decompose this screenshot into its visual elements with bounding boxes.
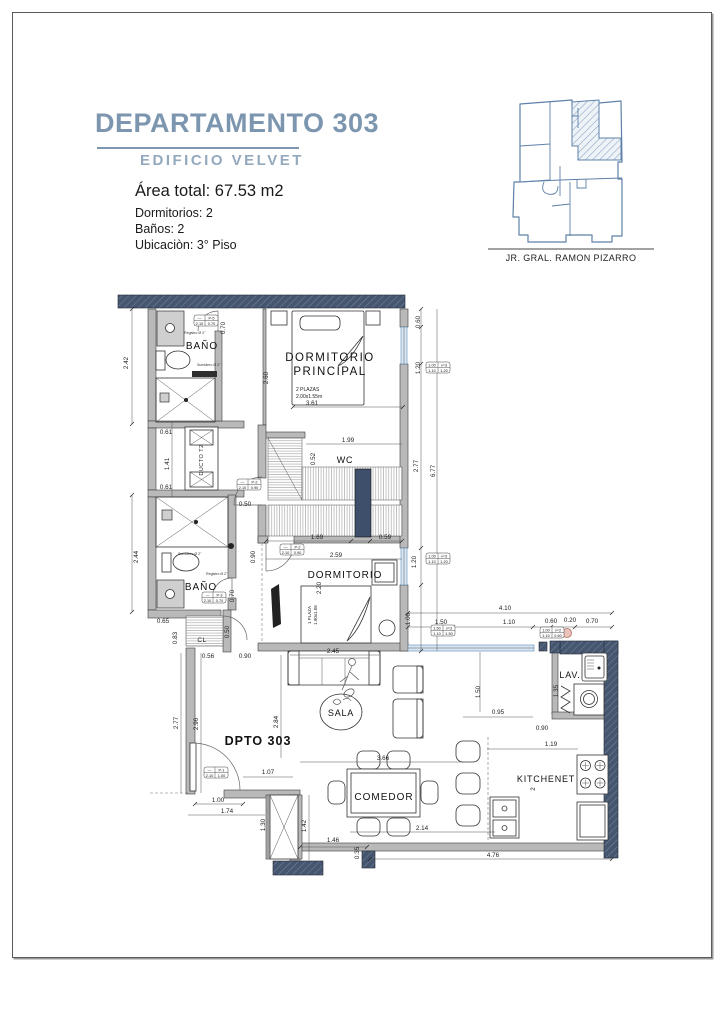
counter — [577, 802, 608, 840]
dim-label: 0.95 — [492, 709, 505, 716]
dim-label: 1.00 — [212, 797, 225, 804]
room-label-ducto: DUCTO T2 — [199, 444, 205, 475]
duct-shaft — [355, 469, 371, 537]
svg-text:1.20: 1.20 — [440, 560, 447, 564]
dim-label: 1.35 — [553, 684, 560, 697]
dim-label: 0.35 — [354, 846, 361, 859]
dim-label: 0.52 — [310, 452, 317, 465]
dim-label: 3.61 — [306, 400, 319, 407]
dim-label: 1.74 — [221, 808, 234, 815]
svg-text:P-2: P-2 — [295, 545, 301, 549]
kitchen-fixtures — [456, 653, 608, 841]
washing-machine — [574, 684, 604, 715]
dim-label: 1.99 — [342, 437, 355, 444]
fixture-note: Sumidero Ø 2" — [178, 552, 202, 556]
svg-text:2.10: 2.10 — [206, 774, 213, 778]
svg-text:2.10: 2.10 — [204, 599, 211, 603]
svg-text:0.70: 0.70 — [208, 322, 215, 326]
dim-label: 2 — [530, 787, 537, 791]
tv — [271, 584, 281, 628]
dim-label: 1.20 — [415, 361, 422, 374]
living-room-furniture — [288, 651, 423, 738]
window-spec-v3c: 1.50 v=3 1.10 1.50 — [431, 625, 455, 636]
svg-text:1.10: 1.10 — [433, 632, 440, 636]
window-spec-v3b: 1.00 v=3 1.10 1.20 — [426, 553, 450, 564]
dim-label: 1.30 — [260, 818, 267, 831]
laundry-sink — [582, 653, 607, 681]
room-label-closet: CL — [197, 637, 206, 644]
svg-text:v=2: v=2 — [555, 628, 561, 632]
svg-text:v=3: v=3 — [446, 626, 452, 630]
svg-text:1.00: 1.00 — [428, 554, 435, 558]
dim-label: 0.60 — [545, 618, 558, 625]
svg-text:1.00: 1.00 — [218, 774, 225, 778]
svg-text:1.00: 1.00 — [542, 628, 549, 632]
dim-label: 1.50 — [435, 619, 448, 626]
dim-label: 2.45 — [327, 648, 340, 655]
fixture-note: Registro Ø 2" — [206, 572, 228, 576]
room-label-bano1: BAÑO — [186, 339, 218, 352]
dim-label: 1.46 — [327, 837, 340, 844]
dim-label: 0.20 — [564, 617, 577, 624]
svg-text:2.10: 2.10 — [196, 322, 203, 326]
room-label-dorm-principal-1: DORMITORIO — [285, 352, 375, 364]
svg-text:1.10: 1.10 — [428, 369, 435, 373]
dim-label: 1.19 — [545, 741, 558, 748]
door-spec-p5: — P-5 2.10 0.70 — [194, 315, 218, 326]
svg-text:v=3: v=3 — [441, 554, 447, 558]
svg-text:1.00: 1.00 — [428, 363, 435, 367]
svg-text:1.50: 1.50 — [433, 626, 440, 630]
svg-text:P-1: P-1 — [219, 768, 225, 772]
dim-label: 0.59 — [379, 534, 392, 541]
svg-text:P-5: P-5 — [209, 316, 215, 320]
room-label-lav: LAV. — [559, 670, 580, 680]
bed-spec: 1 PLAZA — [307, 606, 312, 624]
spec-tags: — P-5 2.10 0.70 — P-2 2.10 0.90 — P-2 2.… — [194, 315, 564, 778]
bed-spec: 1.90x1.05 — [313, 605, 318, 625]
dim-label: 0.90 — [239, 653, 252, 660]
dim-label: 0.61 — [160, 484, 173, 491]
dim-label: 1.42 — [301, 819, 308, 832]
dim-label: 0.61 — [160, 429, 173, 436]
dim-label: 0.50 — [224, 625, 231, 638]
dim-label: 2.42 — [123, 356, 130, 369]
stove — [577, 755, 608, 794]
window-spec-v2: 1.00 v=2 1.10 0.60 — [540, 627, 564, 638]
room-label-wc: WC — [337, 455, 354, 465]
apartment-number-label: DPTO 303 — [225, 734, 292, 748]
dim-label: 1.41 — [164, 457, 171, 470]
svg-text:—: — — [198, 316, 202, 320]
svg-text:—: — — [241, 480, 245, 484]
room-label-bano2: BAÑO — [185, 580, 217, 593]
dim-label: 3.66 — [377, 755, 390, 762]
door-spec-p3: — P-3 2.10 0.70 — [202, 592, 226, 603]
dim-label: 0.65 — [157, 618, 170, 625]
dim-label: 2.20 — [316, 581, 323, 594]
door-spec-p2a: — P-2 2.10 0.90 — [237, 479, 261, 490]
fixture-note: Registro Ø 2" — [184, 331, 206, 335]
svg-text:0.90: 0.90 — [294, 551, 301, 555]
dim-label: 1.07 — [262, 769, 275, 776]
dim-label: 2.96 — [193, 717, 200, 730]
dim-label: 1.50 — [475, 685, 482, 698]
dim-label: 2.14 — [416, 825, 429, 832]
room-label-dorm-principal-2: PRINCIPAL — [293, 366, 366, 378]
svg-text:P-3: P-3 — [217, 593, 223, 597]
bed-spec: 2 PLAZAS — [296, 387, 320, 393]
svg-text:1.20: 1.20 — [440, 369, 447, 373]
dim-label: 0.90 — [250, 550, 257, 563]
svg-text:1.10: 1.10 — [542, 634, 549, 638]
dim-label: 0.60 — [415, 315, 422, 328]
dim-label: 1.00 — [405, 612, 412, 625]
plan-sheet: DEPARTAMENTO 303 EDIFICIO VELVET Área to… — [0, 0, 724, 1024]
heater-symbol — [561, 686, 570, 713]
room-label-kitchenet: KITCHENET — [517, 774, 575, 784]
dim-label: 0.50 — [239, 501, 252, 508]
dim-label: 0.70 — [586, 618, 599, 625]
svg-text:—: — — [206, 593, 210, 597]
svg-text:0.70: 0.70 — [216, 599, 223, 603]
dim-label: 1.10 — [503, 619, 516, 626]
dim-label: 2.60 — [263, 371, 270, 384]
svg-text:2.10: 2.10 — [239, 486, 246, 490]
dim-label: 2.84 — [273, 715, 280, 728]
dim-label: 6.77 — [430, 464, 437, 477]
dim-label: 0.56 — [202, 653, 215, 660]
dim-label: 1.20 — [411, 555, 418, 568]
door-spec-p1: — P-1 2.10 1.00 — [204, 767, 228, 778]
svg-text:P-2: P-2 — [252, 480, 258, 484]
svg-text:—: — — [208, 768, 212, 772]
svg-text:0.90: 0.90 — [251, 486, 258, 490]
dim-label: 1.69 — [311, 534, 324, 541]
svg-text:—: — — [284, 545, 288, 549]
door-spec-p2b: — P-2 2.10 0.90 — [280, 544, 304, 555]
dim-label: 4.76 — [487, 852, 500, 859]
dim-label: 2.44 — [133, 550, 140, 563]
dim-label: 4.10 — [499, 605, 512, 612]
svg-text:0.60: 0.60 — [554, 634, 561, 638]
window-spec-v3a: 1.00 v=3 1.10 1.20 — [426, 362, 450, 373]
svg-text:2.10: 2.10 — [282, 551, 289, 555]
dim-label: 0.70 — [229, 589, 236, 602]
dim-label: 0.90 — [536, 725, 549, 732]
svg-text:v=3: v=3 — [441, 363, 447, 367]
dim-label: 2.59 — [330, 552, 343, 559]
svg-text:1.10: 1.10 — [428, 560, 435, 564]
dim-label: 0.70 — [220, 321, 227, 334]
fixture-note: Sumidero Ø 2" — [197, 363, 221, 367]
room-label-dormitorio: DORMITORIO — [308, 570, 383, 581]
room-label-comedor: COMEDOR — [354, 792, 413, 803]
floor-plan: BAÑO DORMITORIO PRINCIPAL 2 PLAZAS 2.00x… — [0, 0, 724, 1024]
room-label-sala: SALA — [328, 708, 354, 718]
dim-label: 2.77 — [173, 716, 180, 729]
dim-label: 2.77 — [413, 459, 420, 472]
svg-text:1.50: 1.50 — [445, 632, 452, 636]
dim-label: 0.83 — [172, 631, 179, 644]
